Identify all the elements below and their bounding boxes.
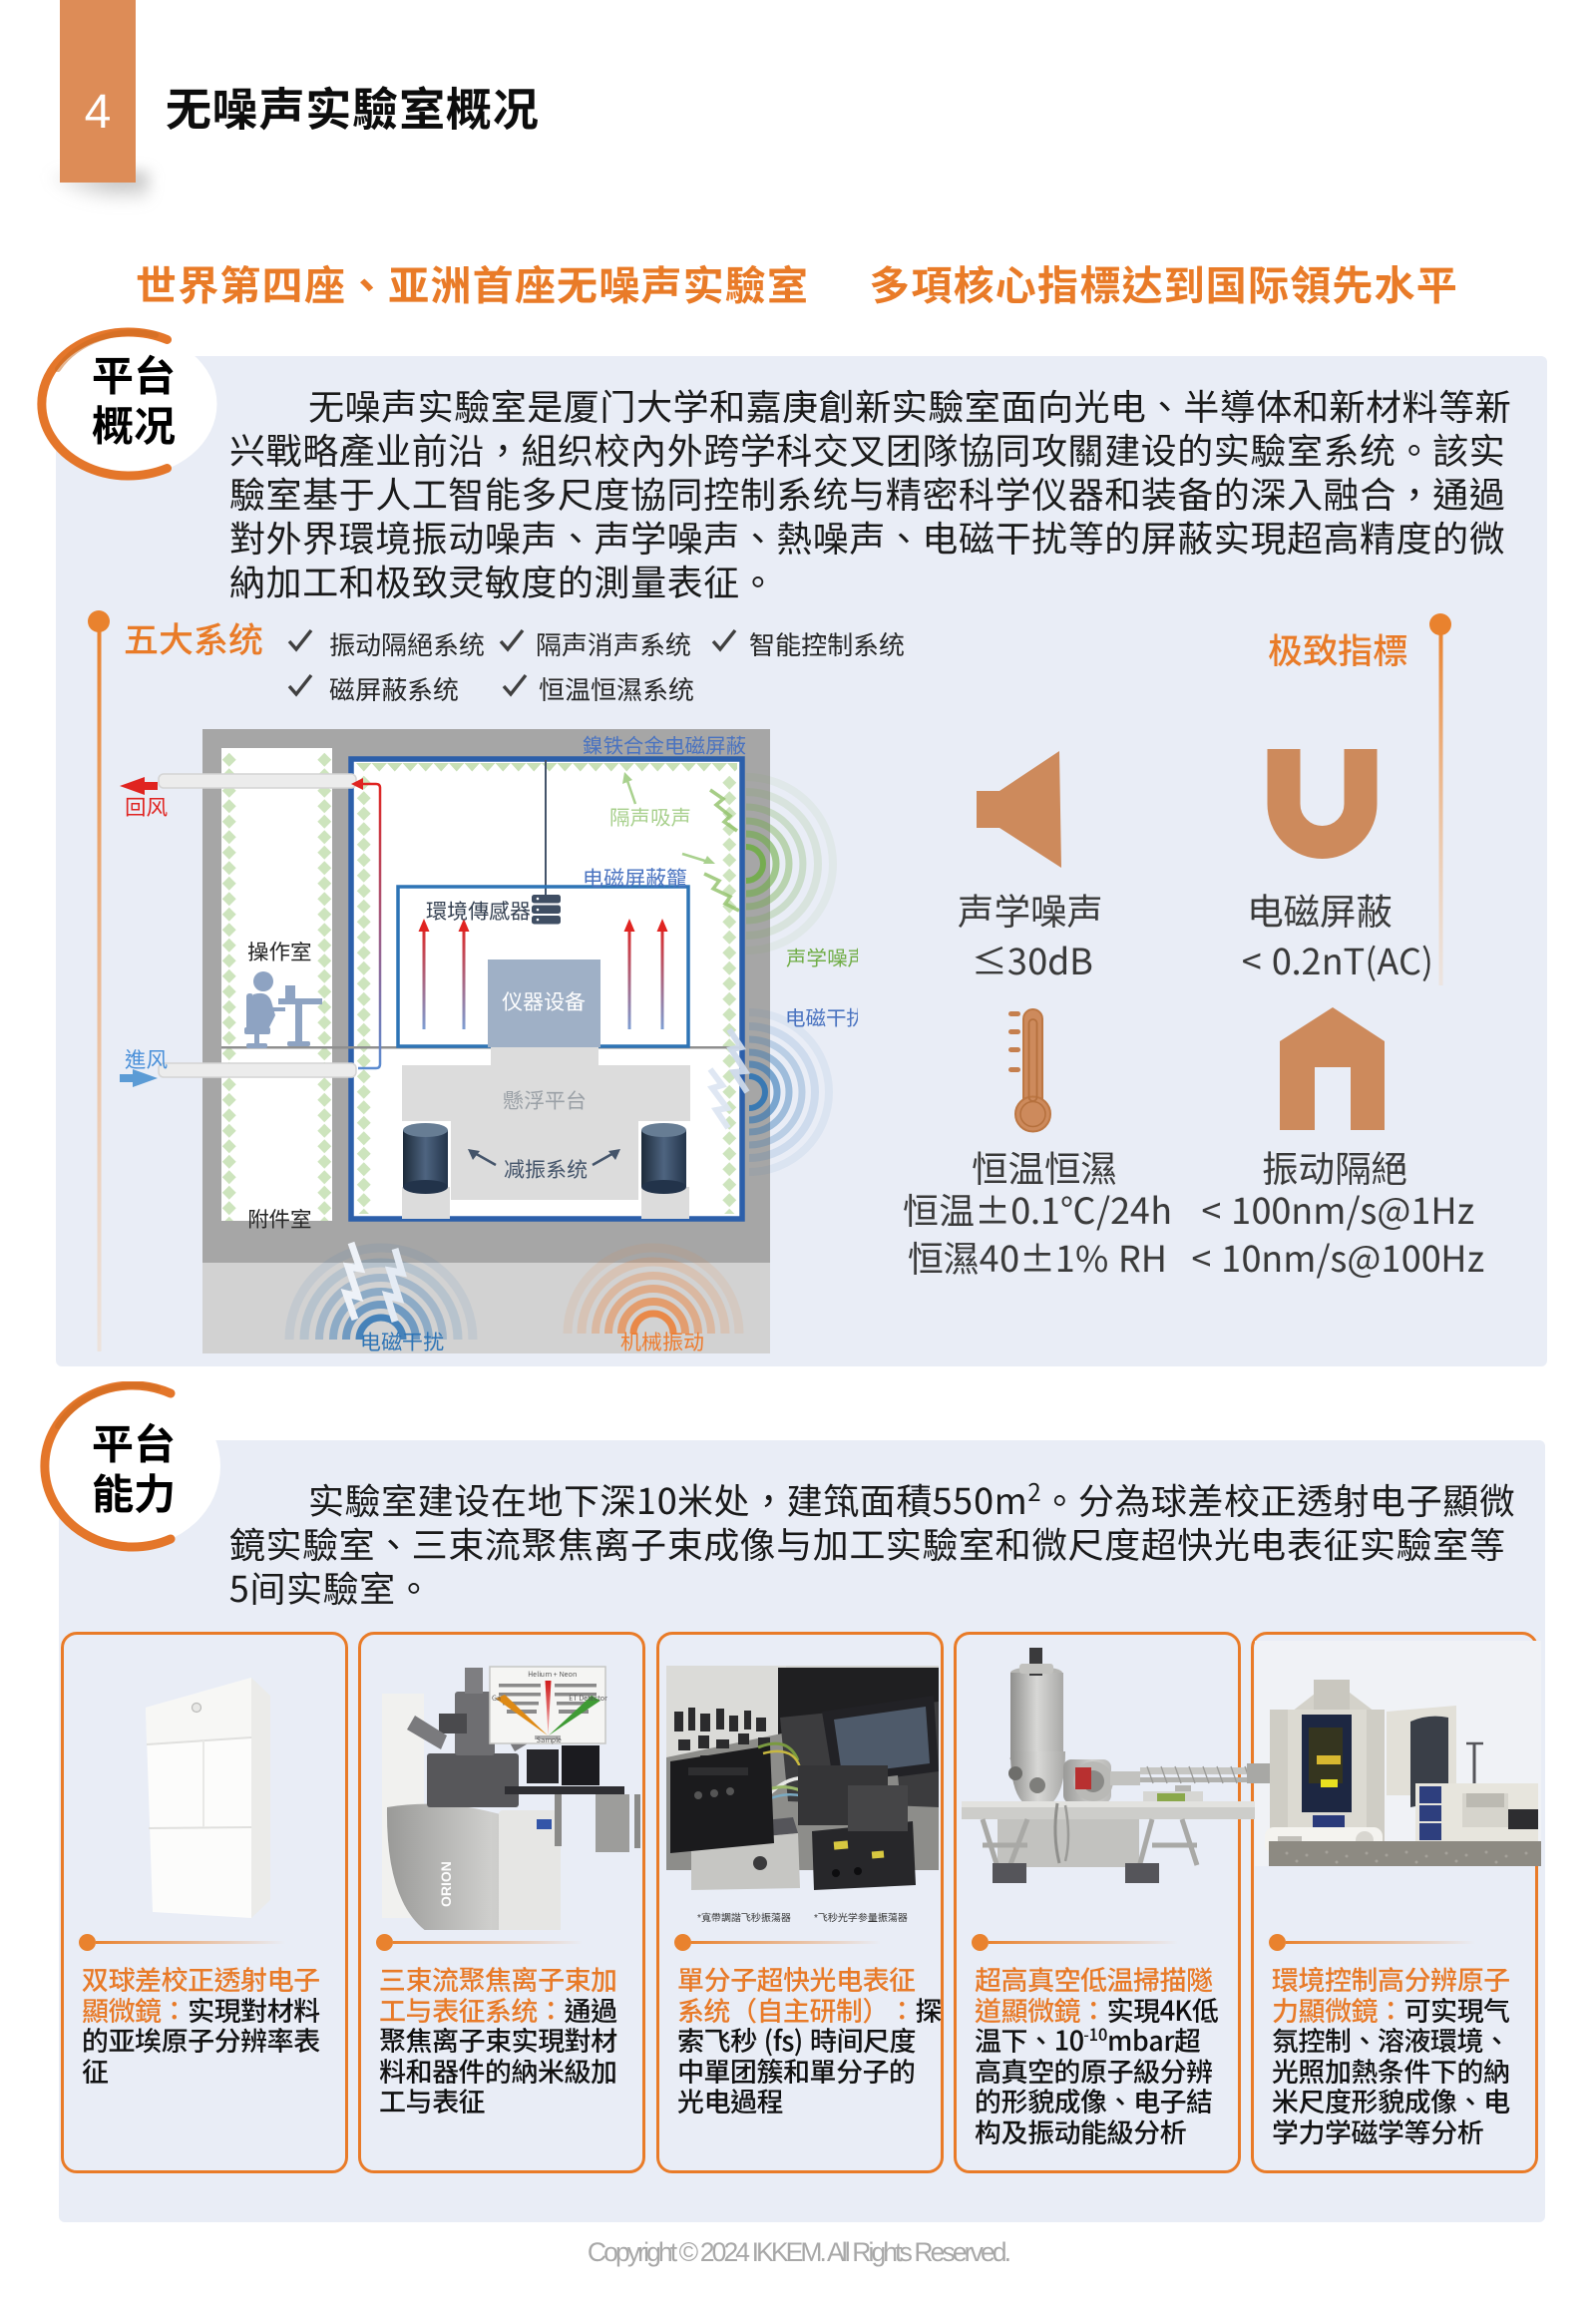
svg-text:减振系统: 减振系统	[504, 1154, 588, 1184]
svg-text:Helium + Neon: Helium + Neon	[528, 1670, 577, 1680]
svg-text:仪器设备: 仪器设备	[502, 986, 586, 1016]
svg-text:*飞秒光学参量振蕩器: *飞秒光学参量振蕩器	[814, 1909, 909, 1924]
svg-text:進风: 進风	[125, 1043, 168, 1074]
svg-text:環境傳感器: 環境傳感器	[426, 896, 531, 926]
svg-text:ET Detector: ET Detector	[569, 1694, 608, 1704]
svg-text:电磁干扰: 电磁干扰	[360, 1327, 444, 1356]
svg-text:鎳铁合金电磁屏蔽: 鎳铁合金电磁屏蔽	[583, 729, 746, 759]
svg-text:Sample: Sample	[537, 1735, 562, 1745]
svg-text:机械振动: 机械振动	[620, 1327, 704, 1356]
svg-text:*寬帶調諧飞秒振蕩器: *寬帶調諧飞秒振蕩器	[697, 1909, 792, 1924]
svg-text:隔声吸声: 隔声吸声	[609, 801, 691, 831]
svg-text:附件室: 附件室	[247, 1203, 312, 1234]
svg-text:声学噪声: 声学噪声	[786, 942, 858, 971]
svg-text:懸浮平台: 懸浮平台	[503, 1085, 587, 1115]
svg-text:电磁干扰: 电磁干扰	[785, 1001, 858, 1031]
svg-text:电磁屏蔽籠: 电磁屏蔽籠	[583, 863, 687, 893]
svg-text:ORION: ORION	[438, 1861, 454, 1907]
svg-text:操作室: 操作室	[247, 936, 312, 966]
svg-text:回风: 回风	[125, 791, 168, 822]
svg-text:Ga: Ga	[492, 1694, 501, 1704]
